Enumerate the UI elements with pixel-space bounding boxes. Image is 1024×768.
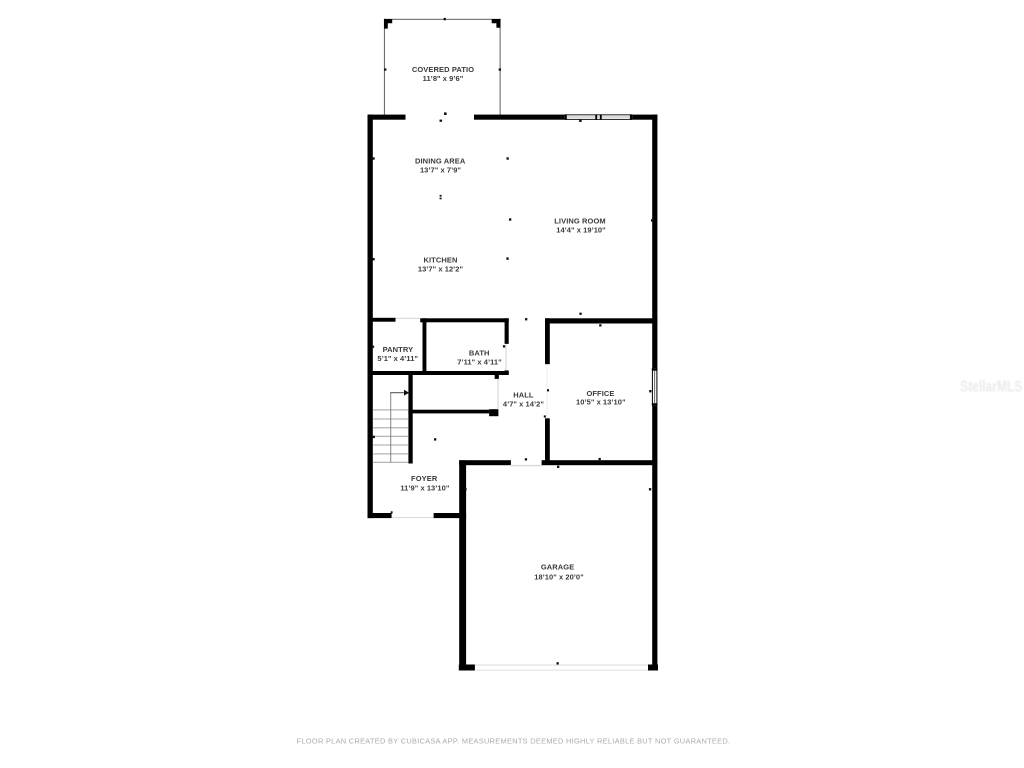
svg-text:18’10" x 20’0": 18’10" x 20’0" (534, 572, 584, 581)
svg-text:LIVING ROOM: LIVING ROOM (554, 216, 606, 225)
svg-text:13’7" x 7’9": 13’7" x 7’9" (420, 165, 461, 174)
svg-text:COVERED PATIO: COVERED PATIO (412, 65, 474, 74)
svg-text:10’5" x 13’10": 10’5" x 13’10" (576, 397, 626, 406)
svg-text:11’9" x 13’10": 11’9" x 13’10" (400, 483, 449, 492)
svg-text:5’1" x 4’11": 5’1" x 4’11" (377, 354, 418, 363)
svg-text:13’7" x 12’2": 13’7" x 12’2" (418, 265, 464, 274)
svg-text:StellarMLS: StellarMLS (960, 379, 1023, 396)
svg-text:14’4" x 19’10": 14’4" x 19’10" (556, 226, 606, 235)
svg-text:7’11" x 4’11": 7’11" x 4’11" (457, 357, 502, 366)
svg-text:KITCHEN: KITCHEN (423, 255, 457, 264)
svg-text:HALL: HALL (513, 391, 534, 400)
svg-text:FLOOR PLAN CREATED BY CUBICASA: FLOOR PLAN CREATED BY CUBICASA APP. MEAS… (297, 736, 731, 745)
svg-text:PANTRY: PANTRY (383, 345, 414, 354)
svg-text:DINING AREA: DINING AREA (415, 156, 466, 165)
svg-text:11’8" x 9’6": 11’8" x 9’6" (423, 74, 464, 83)
svg-text:FOYER: FOYER (411, 474, 438, 483)
svg-text:BATH: BATH (469, 348, 490, 357)
svg-text:4’7" x 14’2": 4’7" x 14’2" (503, 400, 544, 409)
svg-text:GARAGE: GARAGE (541, 563, 575, 572)
